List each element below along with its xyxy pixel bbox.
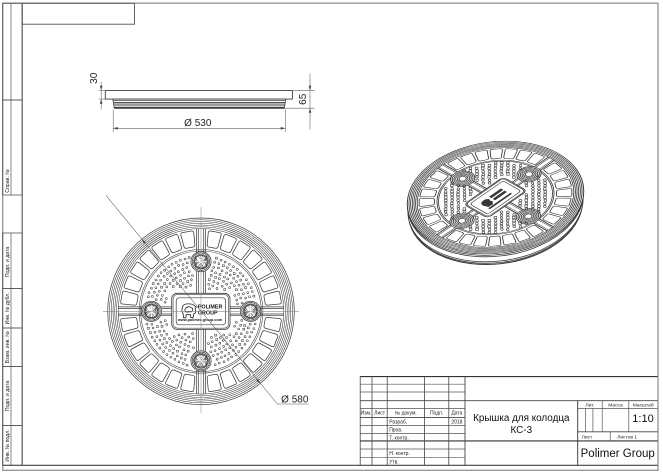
svg-text:Листов 1: Листов 1 bbox=[617, 435, 637, 441]
svg-text:1:10: 1:10 bbox=[632, 413, 653, 425]
svg-text:Взам. инв. №: Взам. инв. № bbox=[5, 331, 11, 364]
svg-text:www.polimer-group.com: www.polimer-group.com bbox=[177, 318, 223, 322]
svg-text:Лист: Лист bbox=[374, 411, 386, 417]
svg-text:Н. контр.: Н. контр. bbox=[389, 451, 410, 457]
svg-text:Изм.: Изм. bbox=[361, 411, 372, 417]
svg-text:Утв.: Утв. bbox=[389, 459, 399, 465]
svg-text:Крышка для колодца: Крышка для колодца bbox=[473, 413, 570, 424]
svg-text:КС-3: КС-3 bbox=[511, 425, 533, 436]
svg-text:Дата: Дата bbox=[451, 411, 462, 417]
svg-text:65: 65 bbox=[298, 93, 309, 105]
svg-text:Подп.: Подп. bbox=[430, 411, 443, 417]
svg-text:Подп. и дата: Подп. и дата bbox=[5, 247, 11, 278]
svg-text:Инв. № дубл.: Инв. № дубл. bbox=[5, 292, 11, 324]
svg-text:Лит.: Лит. bbox=[586, 402, 595, 408]
svg-text:30: 30 bbox=[89, 72, 100, 84]
svg-text:№ докум.: № докум. bbox=[395, 411, 417, 417]
svg-text:Подп. и дата: Подп. и дата bbox=[5, 381, 11, 412]
svg-text:Лист: Лист bbox=[582, 435, 593, 441]
svg-text:Инв. № подл.: Инв. № подл. bbox=[5, 429, 11, 461]
svg-text:Т. контр.: Т. контр. bbox=[389, 435, 409, 441]
svg-text:2018: 2018 bbox=[451, 420, 462, 426]
svg-text:Polimer Group: Polimer Group bbox=[581, 448, 655, 460]
svg-text:Справ. №: Справ. № bbox=[5, 169, 11, 193]
svg-text:Пров.: Пров. bbox=[389, 428, 402, 434]
svg-text:Ø 530: Ø 530 bbox=[184, 118, 212, 129]
svg-text:Разраб.: Разраб. bbox=[389, 420, 407, 426]
svg-text:Масштаб: Масштаб bbox=[633, 402, 654, 408]
svg-text:Масса: Масса bbox=[608, 402, 623, 408]
svg-text:Ø 580: Ø 580 bbox=[281, 395, 309, 406]
